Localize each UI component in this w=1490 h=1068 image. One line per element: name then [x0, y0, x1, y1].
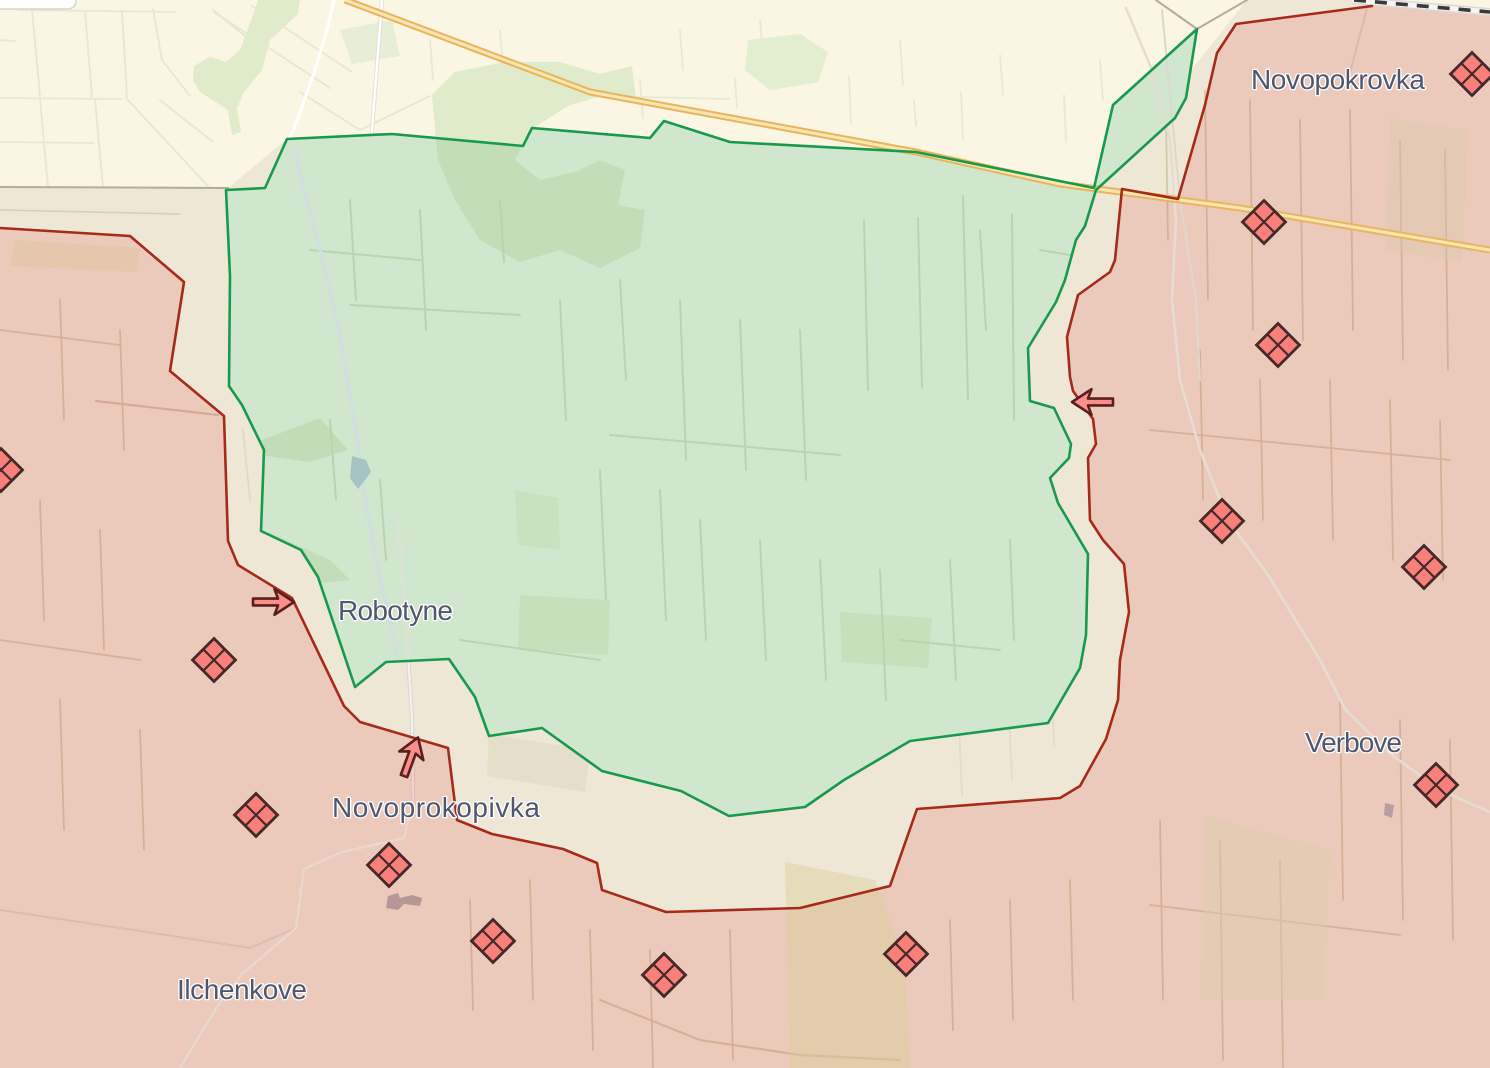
svg-text:Ilchenkove: Ilchenkove	[177, 974, 307, 1005]
svg-text:Robotyne: Robotyne	[338, 595, 453, 626]
svg-text:Novoprokopivka: Novoprokopivka	[332, 792, 540, 823]
svg-text:Verbove: Verbove	[1305, 727, 1402, 758]
svg-text:Novopokrovka: Novopokrovka	[1251, 64, 1425, 95]
